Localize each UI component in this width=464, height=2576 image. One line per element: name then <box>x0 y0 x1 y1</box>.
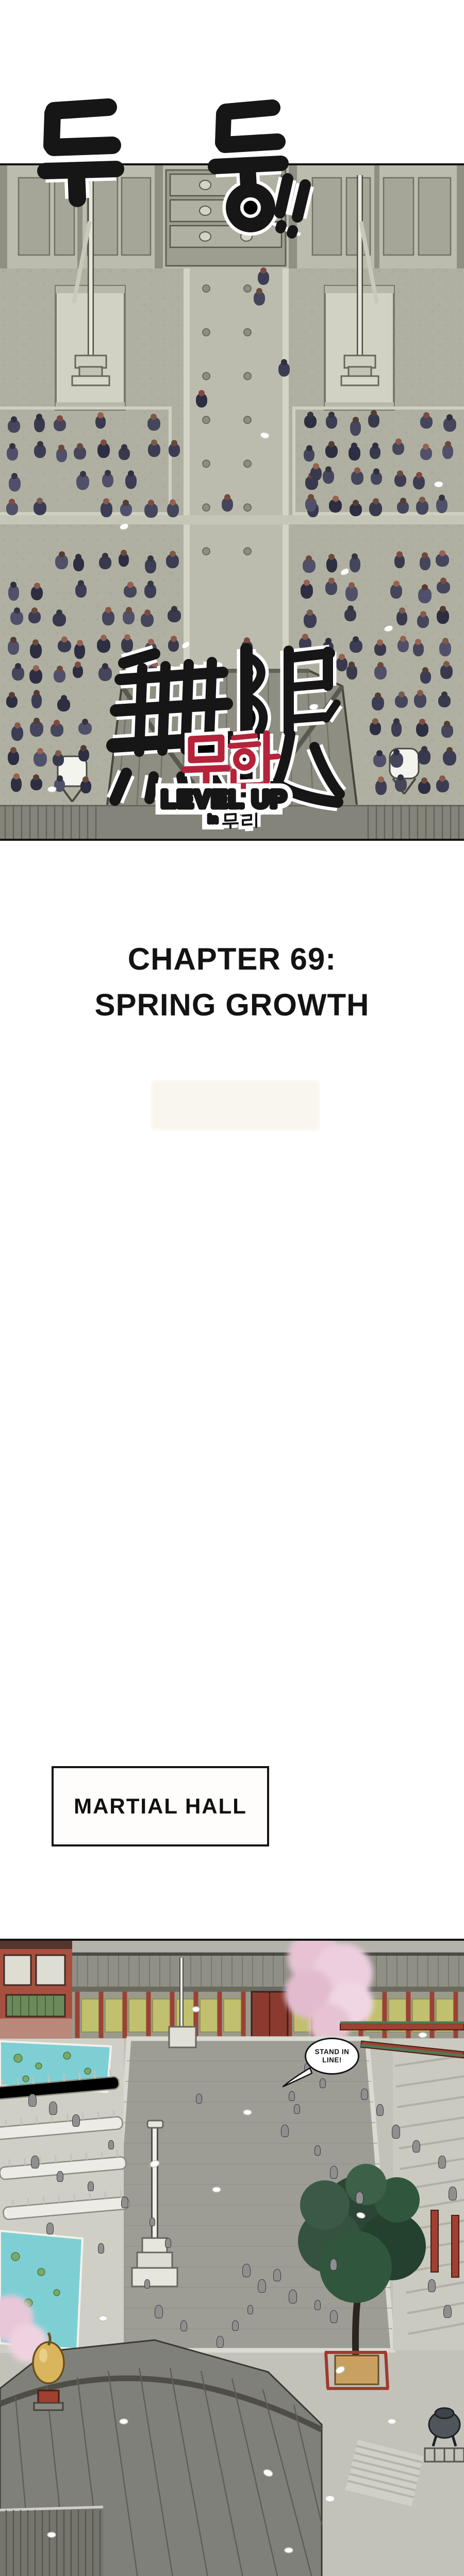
crowd-person <box>54 419 66 431</box>
courtyard-person <box>180 2320 187 2331</box>
crowd-person <box>120 503 132 516</box>
crowd-person <box>99 556 111 569</box>
crowd-person <box>75 584 87 598</box>
courtyard-person <box>428 2279 436 2292</box>
crowd-person <box>375 780 387 795</box>
crowd-person <box>441 724 453 738</box>
crowd-person <box>323 470 334 484</box>
courtyard-people <box>0 1941 464 2576</box>
crowd-person <box>53 754 64 766</box>
crowd-person <box>55 555 68 569</box>
chapter-title: SPRING GROWTH <box>0 987 464 1023</box>
courtyard-person <box>356 2192 363 2204</box>
crowd-person <box>326 557 337 572</box>
courtyard-person <box>49 2102 57 2115</box>
crowd-person <box>397 639 409 652</box>
crowd-person <box>125 474 137 489</box>
crowd-person <box>304 613 317 628</box>
courtyard-person <box>165 2238 171 2248</box>
courtyard-person <box>196 2094 202 2104</box>
crowd-person <box>54 669 65 683</box>
crowd-person <box>8 585 19 601</box>
crowd-person <box>57 699 70 711</box>
crowd-person <box>395 695 408 708</box>
crowd-person <box>396 611 407 625</box>
crowd-person <box>416 722 428 737</box>
crowd-person <box>350 503 362 516</box>
panel-training-arena <box>0 1939 464 2576</box>
crowd-person <box>56 448 67 462</box>
crowd-person <box>34 501 46 515</box>
crowd-person <box>168 609 181 622</box>
crowd-person <box>30 721 43 737</box>
crowd-person <box>51 723 63 737</box>
crowd-person <box>102 611 114 625</box>
crowd-person <box>436 779 449 792</box>
crowd-person <box>7 447 18 461</box>
crowd-person <box>12 667 24 681</box>
crowd-person <box>102 473 113 487</box>
crowd-person <box>345 586 358 601</box>
courtyard-person <box>281 2125 289 2137</box>
crowd-person <box>416 500 428 515</box>
courtyard-person <box>289 2290 297 2303</box>
crowd-person <box>390 753 403 768</box>
crowd-person <box>420 556 430 570</box>
crowd-person <box>169 444 180 457</box>
courtyard-person <box>443 2305 452 2318</box>
crowd-person <box>141 613 154 627</box>
crowd-person <box>166 554 179 568</box>
crowd-person <box>329 499 342 513</box>
crowd-person <box>304 449 314 462</box>
crowd-person <box>374 666 387 680</box>
crowd-person <box>80 780 91 793</box>
crowd-person <box>119 448 130 460</box>
crowd-person <box>350 640 362 653</box>
petal <box>259 431 270 440</box>
crowd-person <box>372 696 384 710</box>
logo-subtitle-in: in <box>208 814 218 825</box>
courtyard-person <box>247 2305 253 2314</box>
courtyard-person <box>144 2279 150 2289</box>
crowd-person <box>439 641 451 656</box>
crowd-person <box>124 585 137 598</box>
crowd-person <box>391 722 402 737</box>
courtyard-person <box>330 2259 337 2270</box>
chapter-number: CHAPTER 69: <box>0 941 464 977</box>
crowd-person <box>31 693 42 708</box>
crowd-person <box>390 584 402 599</box>
crowd-person <box>414 693 426 708</box>
crowd-person <box>413 642 424 656</box>
crowd-person <box>350 420 361 436</box>
crowd-person <box>351 471 363 485</box>
crowd-person <box>123 611 135 624</box>
faded-watermark <box>151 1080 320 1130</box>
crowd-person <box>119 553 129 567</box>
courtyard-person <box>330 2310 338 2323</box>
walkway-person <box>305 498 317 512</box>
courtyard-person <box>98 2243 104 2253</box>
crowd-person <box>73 665 83 678</box>
crowd-person <box>301 583 313 599</box>
crowd-person <box>349 446 360 461</box>
crowd-person <box>30 778 42 790</box>
crowd-person <box>417 615 429 628</box>
crowd-person <box>11 726 23 741</box>
walkway-person <box>196 394 207 408</box>
crowd-person <box>304 415 317 428</box>
crowd-person <box>374 643 386 656</box>
crowd-person <box>9 477 21 492</box>
crowd-person <box>144 503 158 518</box>
walkway-person <box>222 498 233 512</box>
crowd-person <box>397 501 409 514</box>
crowd-person <box>438 695 451 707</box>
crowd-person <box>167 503 179 517</box>
petal <box>340 568 350 575</box>
speech-bubble-tail <box>281 2065 317 2091</box>
crowd-person <box>8 640 19 655</box>
crowd-person <box>30 643 42 658</box>
courtyard-person <box>57 2171 63 2182</box>
series-logo: LEVEL UP in LEVEL UP in <box>101 636 348 832</box>
crowd-person <box>10 611 23 625</box>
courtyard-person <box>294 2104 300 2114</box>
crowd-person <box>326 415 337 429</box>
crowd-person <box>443 751 456 766</box>
courtyard-person <box>412 2140 420 2153</box>
walkway-person <box>258 271 269 285</box>
crowd-person <box>440 665 453 679</box>
crowd-person <box>442 445 453 459</box>
crowd-person <box>97 443 110 458</box>
crowd-person <box>436 498 448 513</box>
crowd-person <box>58 640 71 652</box>
courtyard-person <box>258 2279 266 2293</box>
courtyard-person <box>31 2156 39 2168</box>
courtyard-person <box>88 2181 94 2191</box>
courtyard-person <box>392 2125 400 2139</box>
logo-level-up: LEVEL UP <box>161 785 288 812</box>
courtyard-person <box>314 2300 321 2310</box>
crowd-person <box>74 643 85 659</box>
petal <box>384 625 393 632</box>
crowd-person <box>73 557 84 571</box>
crowd-person <box>350 557 360 572</box>
courtyard-person <box>108 2140 114 2149</box>
courtyard-person <box>232 2320 239 2331</box>
crowd-person <box>95 416 106 429</box>
crowd-person <box>418 588 432 603</box>
crowd-person <box>370 722 381 735</box>
courtyard-person <box>438 2156 446 2168</box>
crowd-person <box>437 581 450 594</box>
crowd-person <box>344 609 356 621</box>
crowd-person <box>394 555 405 568</box>
crowd-person <box>74 447 86 460</box>
crowd-person <box>6 696 18 708</box>
crowd-person <box>420 416 433 429</box>
courtyard-person <box>376 2104 384 2116</box>
crowd-person <box>144 584 156 598</box>
courtyard-person <box>289 2091 295 2101</box>
crowd-person <box>369 502 382 516</box>
crowd-person <box>392 442 404 455</box>
courtyard-person <box>150 2217 155 2226</box>
crowd-person <box>34 445 46 458</box>
crowd-person <box>418 781 430 794</box>
courtyard-person <box>449 2187 457 2200</box>
crowd-person <box>371 472 382 485</box>
crowd-person <box>8 751 19 765</box>
courtyard-person <box>361 2089 368 2100</box>
webtoon-page: LEVEL UP in LEVEL UP in CHAPTER 69: SPRI… <box>0 0 464 2576</box>
courtyard-person <box>72 2114 80 2127</box>
crowd-person <box>420 671 431 684</box>
crowd-person <box>76 474 89 490</box>
courtyard-person <box>273 2269 281 2281</box>
crowd-person <box>373 754 386 767</box>
crowd-person <box>303 559 316 573</box>
crowd-person <box>325 581 337 595</box>
crowd-person <box>418 750 430 765</box>
walkway-person <box>254 292 265 306</box>
sfx-doo-icon <box>31 88 134 216</box>
crowd-person <box>145 559 156 573</box>
crowd-person <box>101 502 112 517</box>
courtyard-person <box>46 2223 54 2234</box>
courtyard-person <box>330 2166 338 2179</box>
crowd-person <box>11 777 22 792</box>
location-label-martial-hall: MARTIAL HALL <box>52 1766 269 1846</box>
courtyard-person <box>320 2078 326 2088</box>
courtyard-person <box>242 2264 251 2277</box>
crowd-person <box>420 447 432 460</box>
crowd-person <box>395 778 407 792</box>
crowd-person <box>6 502 18 515</box>
crowd-person <box>436 554 449 567</box>
petal <box>120 523 128 530</box>
courtyard-person <box>155 2305 163 2318</box>
courtyard-person <box>217 2336 224 2348</box>
crowd-person <box>370 446 380 459</box>
courtyard-person <box>28 2094 37 2107</box>
courtyard-person <box>121 2197 128 2208</box>
crowd-person <box>8 420 20 433</box>
crowd-person <box>148 443 160 457</box>
crowd-person <box>29 669 42 684</box>
courtyard-person <box>314 2145 321 2156</box>
crowd-person <box>325 445 338 458</box>
crowd-person <box>31 586 43 600</box>
crowd-person <box>78 749 89 761</box>
crowd-person <box>443 418 456 432</box>
crowd-person <box>78 722 92 735</box>
crowd-person <box>28 611 41 623</box>
crowd-person <box>34 417 45 432</box>
walkway-person <box>310 467 322 481</box>
petal <box>434 480 443 488</box>
crowd-person <box>368 414 379 428</box>
crowd-person <box>413 476 425 489</box>
crowd-person <box>53 613 66 626</box>
sfx-doong-icon <box>206 90 314 245</box>
crowd-person <box>437 609 449 624</box>
walkway-person <box>278 363 290 377</box>
crowd-person <box>147 417 160 431</box>
crowd-person <box>394 474 406 487</box>
crowd-person <box>34 752 47 767</box>
